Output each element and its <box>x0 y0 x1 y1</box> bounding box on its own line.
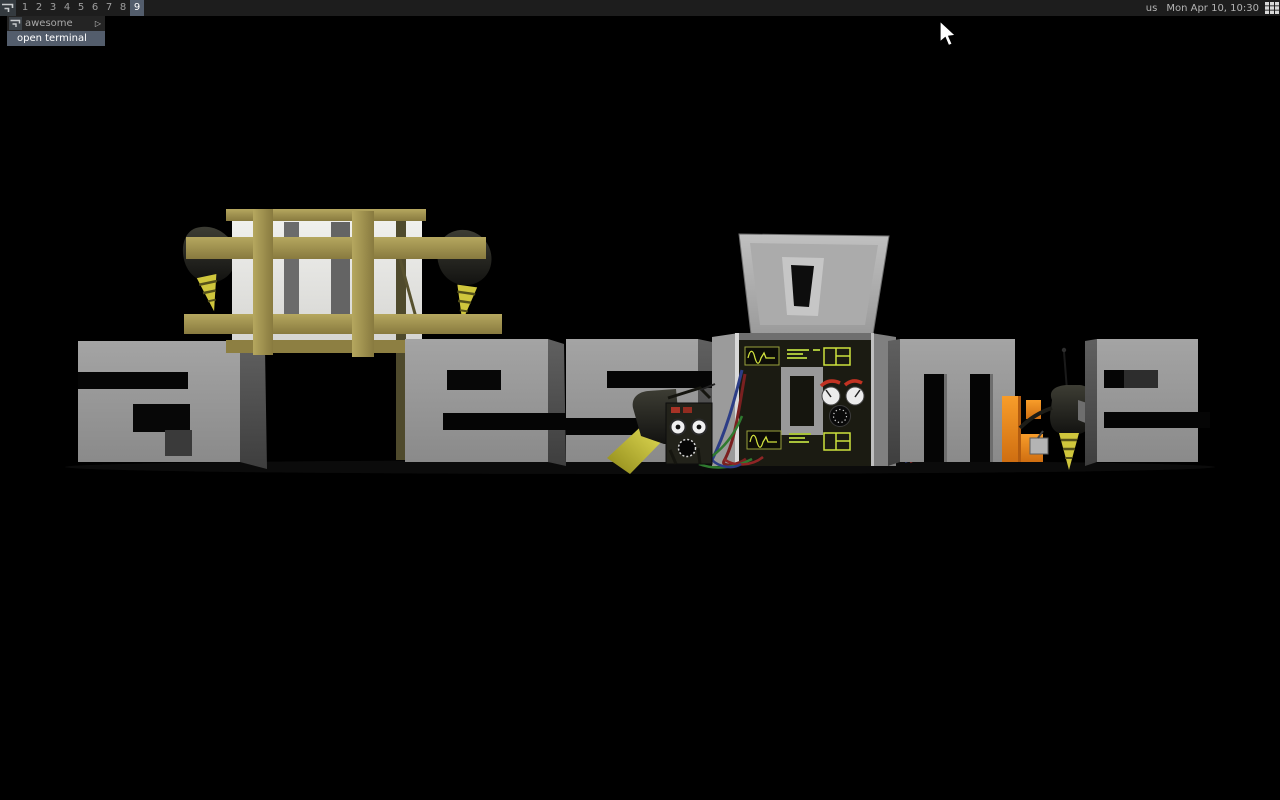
mouse-cursor <box>938 20 960 48</box>
tag-9[interactable]: 9 <box>130 0 144 16</box>
awesome-wallpaper-art <box>0 0 1280 800</box>
letter-e-final <box>1085 339 1210 466</box>
stamp-slot <box>781 367 823 435</box>
layoutbox[interactable] <box>1264 0 1280 16</box>
tag-4[interactable]: 4 <box>60 0 74 16</box>
machine-lid <box>739 234 889 334</box>
tag-2[interactable]: 2 <box>32 0 46 16</box>
oscilloscope-display-top <box>745 347 779 365</box>
tag-1[interactable]: 1 <box>18 0 32 16</box>
letter-a <box>78 341 267 469</box>
taglist: 1 2 3 4 5 6 7 8 9 <box>18 0 144 16</box>
oscilloscope-display-bottom <box>747 431 781 449</box>
tag-6[interactable]: 6 <box>88 0 102 16</box>
letter-e <box>405 339 566 466</box>
clock: Mon Apr 10, 10:30 <box>1166 3 1259 14</box>
keyboard-layout-indicator[interactable]: us <box>1146 3 1158 14</box>
tag-3[interactable]: 3 <box>46 0 60 16</box>
awesome-root-menu: awesome ▷ open terminal <box>7 16 105 46</box>
submenu-arrow-icon: ▷ <box>95 19 101 28</box>
tag-5[interactable]: 5 <box>74 0 88 16</box>
menu-item-label: open terminal <box>7 33 105 44</box>
menu-item-awesome[interactable]: awesome ▷ <box>7 16 105 31</box>
tag-8[interactable]: 8 <box>116 0 130 16</box>
fair-grid-layout-icon <box>1265 2 1279 14</box>
menu-item-open-terminal[interactable]: open terminal <box>7 31 105 46</box>
tag-7[interactable]: 7 <box>102 0 116 16</box>
awesome-launcher-icon[interactable] <box>0 0 16 16</box>
desktop-root[interactable]: 1 2 3 4 5 6 7 8 9 us Mon Apr 10, 10:30 a… <box>0 0 1280 800</box>
letter-m <box>888 339 1015 466</box>
menu-item-label: awesome <box>25 18 95 29</box>
awesome-logo-icon <box>9 17 22 30</box>
wibar: 1 2 3 4 5 6 7 8 9 us Mon Apr 10, 10:30 <box>0 0 1280 16</box>
